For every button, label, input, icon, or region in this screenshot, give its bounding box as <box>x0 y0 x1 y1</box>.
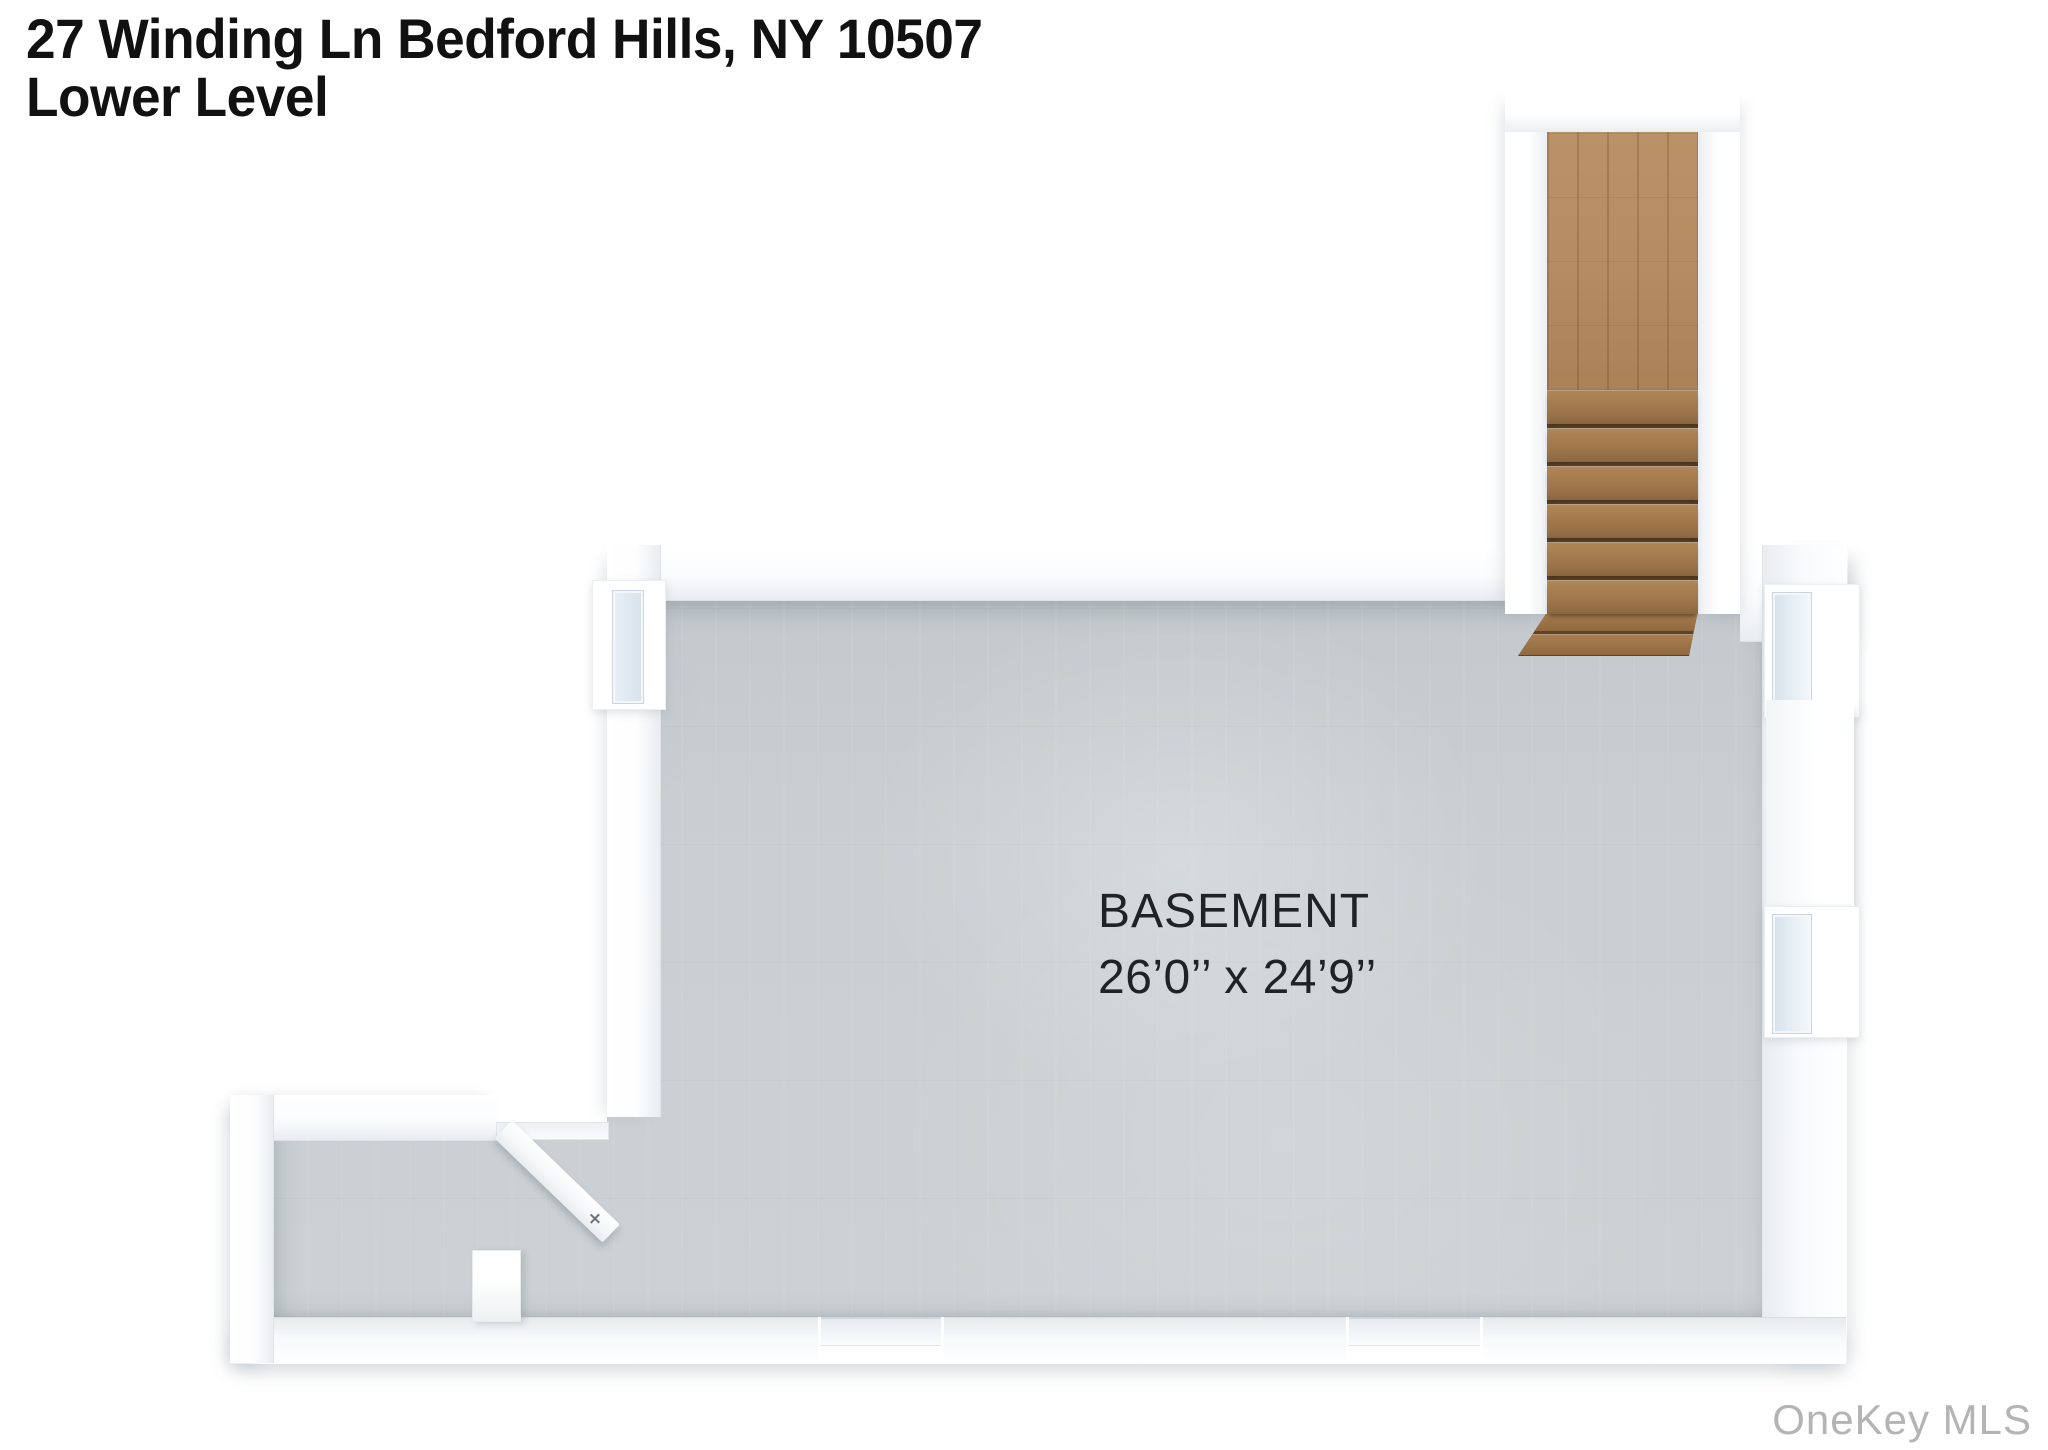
top-wall <box>607 545 1505 601</box>
stair-step <box>1547 466 1698 500</box>
partition-stub-wall <box>472 1250 521 1322</box>
door-threshold <box>1349 1317 1480 1346</box>
window-right-lower <box>1764 906 1860 1038</box>
staircase <box>1547 132 1698 612</box>
room-dimensions: 26’0’’ x 24’9’’ <box>1098 950 1377 1005</box>
right-wall-pier <box>1766 700 1854 912</box>
stair-shaft-right-wall <box>1698 90 1740 614</box>
door-handle-icon <box>586 1210 603 1227</box>
window-glass <box>1773 593 1811 713</box>
window-right-upper <box>1764 584 1860 718</box>
room-label: BASEMENT <box>1098 884 1370 939</box>
bottom-wall <box>230 1317 1846 1364</box>
stair-step <box>1547 428 1698 462</box>
floorplan-image: 27 Winding Ln Bedford Hills, NY 10507 Lo… <box>0 0 2048 1450</box>
stair-step <box>1547 504 1698 538</box>
window-glass <box>1773 915 1811 1033</box>
floorplan-title: 27 Winding Ln Bedford Hills, NY 10507 Lo… <box>26 10 1356 126</box>
stair-exit-steps <box>1518 610 1698 656</box>
basement-floor <box>273 600 1768 1317</box>
door-opening-1 <box>818 1317 944 1363</box>
window-glass <box>613 591 643 703</box>
door-threshold <box>821 1317 941 1346</box>
stair-landing <box>1547 132 1698 393</box>
stair-step <box>1547 390 1698 424</box>
title-level: Lower Level <box>26 68 1356 126</box>
stair-steps <box>1547 390 1698 612</box>
stair-step <box>1547 542 1698 576</box>
stair-step <box>1518 634 1698 655</box>
extension-left-wall <box>230 1095 274 1363</box>
title-address: 27 Winding Ln Bedford Hills, NY 10507 <box>26 10 1356 68</box>
stair-shaft-left-wall <box>1505 90 1547 614</box>
watermark: OneKey MLS <box>1772 1396 2032 1444</box>
stair-shaft-top-wall <box>1505 90 1740 132</box>
window-left <box>592 580 666 710</box>
door-opening-2 <box>1346 1317 1483 1363</box>
stair-step <box>1547 580 1698 614</box>
